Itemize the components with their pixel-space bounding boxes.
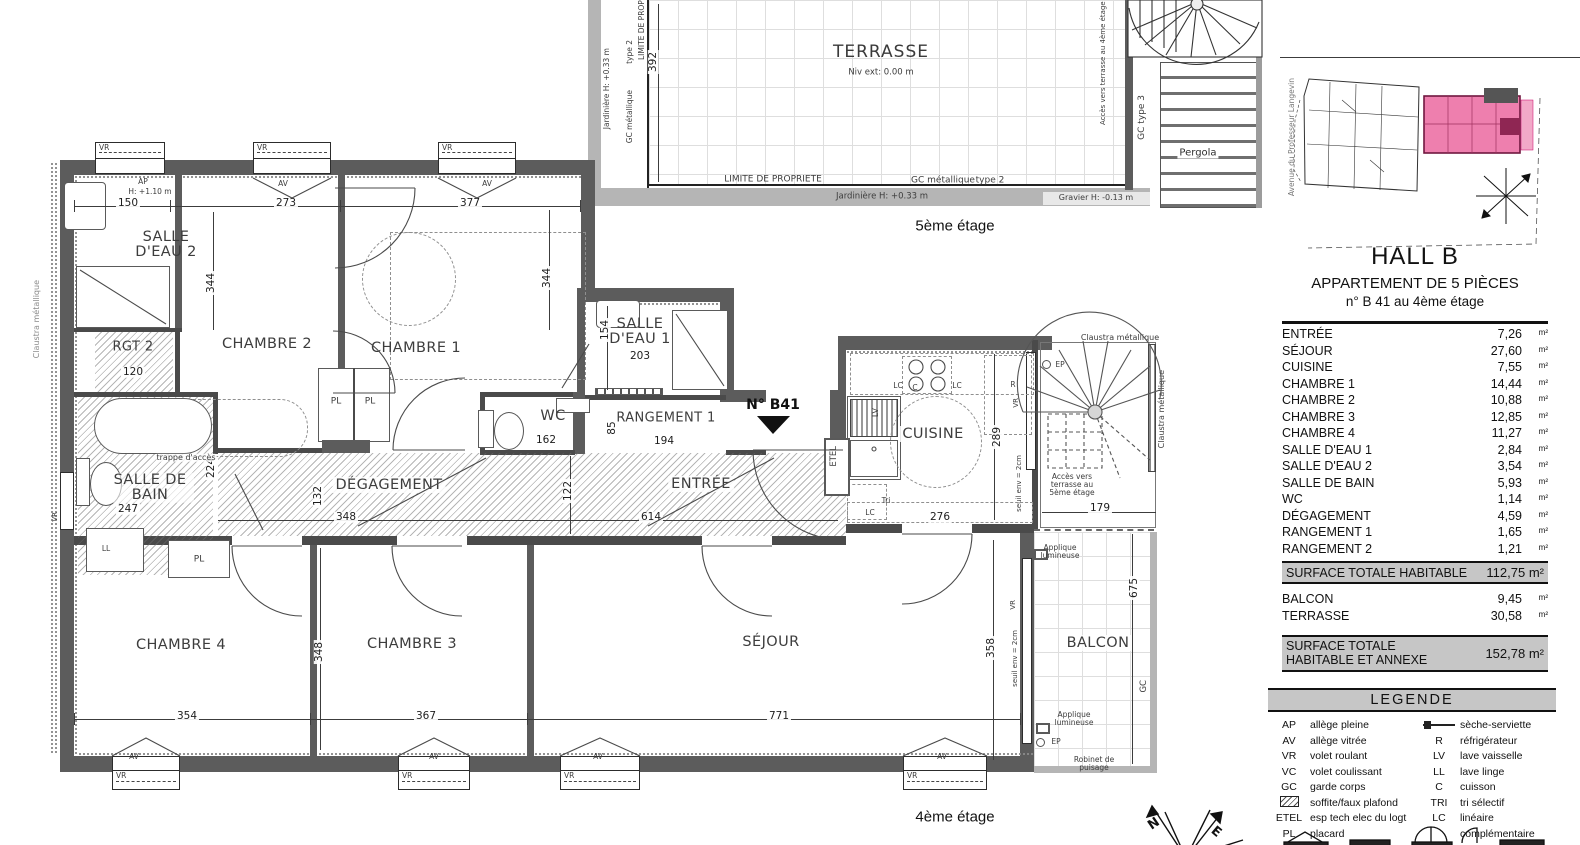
- room-name: BALCON: [1282, 592, 1470, 607]
- room-area: 7,26: [1470, 327, 1522, 342]
- door-arc-sejour: [702, 546, 772, 616]
- legend-label: volet coulissant: [1310, 765, 1418, 781]
- claustra-right-label: Claustra métallique: [1158, 370, 1166, 448]
- legend-item: soffite/faux plafond: [1268, 796, 1418, 812]
- room-name: CHAMBRE 4: [1282, 426, 1470, 441]
- vr-label: VR: [257, 144, 267, 152]
- terrace-gc-label: GC métallique: [911, 176, 975, 185]
- sitemap-building: [1294, 79, 1419, 191]
- architectural-drawing-sheet: { "labels": {"vr":"VR","av":"AV","ap":"A…: [0, 0, 1580, 845]
- terrace-left-type2-label: type 2: [626, 40, 634, 64]
- unit: m²: [1522, 475, 1548, 490]
- vr-label: VR: [116, 772, 126, 780]
- door-arc-ch1: [393, 378, 465, 450]
- wall-kitchen-top: [838, 336, 1052, 350]
- balcony-right-rail: [1150, 532, 1157, 772]
- table-row: CHAMBRE 210,88m²: [1282, 393, 1548, 410]
- unit: m²: [1522, 458, 1548, 473]
- table-row: SALLE DE BAIN5,93m²: [1282, 476, 1548, 493]
- vr-label: VR: [907, 772, 917, 780]
- room-name: RANGEMENT 1: [1282, 525, 1470, 540]
- table-row: BALCON9,45m²: [1282, 592, 1548, 609]
- room-area: 7,55: [1470, 360, 1522, 375]
- c-label: C: [912, 384, 917, 392]
- total-annexe-value: 152,78 m²: [1485, 646, 1544, 661]
- vr-label: VR: [442, 144, 452, 152]
- dim-150: 150: [116, 198, 140, 209]
- dim-348: 348: [334, 512, 358, 523]
- cuisine-table-dashed: [890, 396, 982, 488]
- dim-614: 614: [639, 512, 663, 523]
- gc-balcony-label: GC: [1140, 680, 1149, 693]
- balcony-top-dashed: [1034, 529, 1154, 531]
- legend-code: AP: [1268, 718, 1310, 734]
- ll-label: LL: [102, 545, 110, 553]
- wall-corridor-bottom-c: [467, 536, 702, 545]
- door-arc-ch4: [232, 546, 302, 616]
- unit: m²: [1522, 326, 1548, 341]
- wall-wc-top: [480, 392, 585, 397]
- room-area: 14,44: [1470, 377, 1522, 392]
- room-label-cuisine: CUISINE: [899, 426, 966, 442]
- legend-label: garde corps: [1310, 780, 1418, 796]
- room-label-rgt2: RGT 2: [113, 340, 154, 355]
- legend-label: allège vitrée: [1310, 734, 1418, 750]
- room-label-rgt1: RANGEMENT 1: [616, 411, 715, 426]
- table-row: CHAMBRE 312,85m²: [1282, 410, 1548, 427]
- room-name: SÉJOUR: [1282, 344, 1470, 359]
- unit-number-label: N° B41: [746, 397, 800, 413]
- spiral-stair-5th: [1128, 0, 1262, 64]
- kitchen-fridge: [984, 355, 1032, 435]
- table-row: ENTRÉE7,26m²: [1282, 327, 1548, 344]
- table-row: SÉJOUR27,60m²: [1282, 344, 1548, 361]
- legend-item: PLplacard: [1268, 827, 1418, 843]
- lc-label: LC: [893, 382, 902, 390]
- dim-line-675: [1132, 534, 1133, 764]
- room-name: RANGEMENT 2: [1282, 542, 1470, 557]
- legend-right-column: sèche-serviette Rréfrigérateur LVlave va…: [1418, 718, 1556, 842]
- total-habitable-band: SURFACE TOTALE HABITABLE 112,75 m²: [1282, 561, 1548, 584]
- pl-label: PL: [194, 555, 204, 564]
- legend-label: esp tech elec du logt: [1310, 811, 1418, 827]
- legend-code: PL: [1268, 827, 1310, 843]
- vr-label: VR: [402, 772, 412, 780]
- terrace-jardiniere-label: Jardinière H: +0.33 m: [836, 193, 928, 202]
- acces-terrasse-note: Accès vers terrasse au 5ème étage: [1040, 473, 1104, 497]
- total-habitable-label: SURFACE TOTALE HABITABLE: [1286, 566, 1486, 580]
- legend-item: GCgarde corps: [1268, 780, 1418, 796]
- legend-columns: APallège pleine AVallège vitrée VRvolet …: [1268, 718, 1556, 842]
- terrace-left-gc-label: GC métallique: [626, 90, 634, 143]
- room-area: 9,45: [1470, 592, 1522, 607]
- legend-code: C: [1418, 780, 1460, 796]
- room-label-ch1: CHAMBRE 1: [371, 340, 461, 356]
- wc-toilet-tank: [478, 410, 494, 448]
- dim-tick: [580, 200, 581, 212]
- window-sdb-left: [60, 472, 74, 530]
- av-label: AV: [429, 753, 439, 761]
- unit: m²: [1522, 409, 1548, 424]
- legend-item: TRItri sélectif: [1418, 796, 1556, 812]
- legend-item: sèche-serviette: [1418, 718, 1556, 734]
- legend: LEGENDE APallège pleine AVallège vitrée …: [1268, 688, 1556, 842]
- washing-machine: [86, 528, 144, 572]
- dim-276: 276: [928, 512, 952, 523]
- placard-divider: [353, 368, 355, 442]
- room-name: CUISINE: [1282, 360, 1470, 375]
- soffite-icon: [1268, 796, 1310, 812]
- dim-tick: [170, 200, 171, 212]
- av-label: AV: [937, 753, 947, 761]
- dim-273: 273: [274, 198, 298, 209]
- areas-table: ENTRÉE7,26m² SÉJOUR27,60m² CUISINE7,55m²…: [1282, 321, 1548, 558]
- terrace-limite-label: LIMITE DE PROPRIETE: [724, 175, 822, 184]
- applique-label: Applique lumineuse: [1048, 711, 1100, 727]
- dim-348: 348: [314, 640, 325, 664]
- dim-203: 203: [628, 351, 652, 362]
- room-area: 2,84: [1470, 443, 1522, 458]
- terrace-gc-type2: type 2: [976, 176, 1005, 185]
- ep-marker: [1036, 738, 1045, 747]
- wall-left: [60, 160, 74, 772]
- apartment-subtitle: APPARTEMENT DE 5 PIÈCES: [1282, 275, 1548, 292]
- unit: m²: [1522, 376, 1548, 391]
- legend-item: VCvolet coulissant: [1268, 765, 1418, 781]
- dim-tick: [340, 200, 341, 212]
- room-area: 11,27: [1470, 426, 1522, 441]
- sitemap-unit-highlight: [1308, 88, 1540, 248]
- unit: m²: [1522, 541, 1548, 556]
- room-name: SALLE DE BAIN: [1282, 476, 1470, 491]
- dim-132: 132: [313, 484, 324, 508]
- room-label-deg: DÉGAGEMENT: [332, 477, 445, 493]
- legend-label: tri sélectif: [1460, 796, 1556, 812]
- vr-label-vertical: VR: [52, 512, 59, 522]
- av-label: AV: [129, 753, 139, 761]
- legend-code: ETEL: [1268, 811, 1310, 827]
- window-sde2: [95, 158, 165, 174]
- dim-line-bottom: [74, 719, 1020, 720]
- insulation-bottom: [78, 752, 1035, 756]
- unit: m²: [1522, 343, 1548, 358]
- terrace-dim-line-392: [658, 4, 659, 182]
- claustra-left-label: Claustra métallique: [33, 280, 41, 358]
- dim-367: 367: [414, 711, 438, 722]
- room-name: SALLE D'EAU 1: [1282, 443, 1470, 458]
- legend-item: LVlave vaisselle: [1418, 749, 1556, 765]
- ep-marker: [1042, 360, 1051, 369]
- sitemap-separator-line: [1280, 57, 1580, 58]
- vr-label: VR: [564, 772, 574, 780]
- legend-code: LC: [1418, 811, 1460, 842]
- legend-code: VR: [1268, 749, 1310, 765]
- window-height-note: H: +1.10 m: [128, 188, 171, 196]
- wall-kitchen-left: [838, 350, 846, 396]
- terrace-level-note: Niv ext: 0.00 m: [848, 69, 913, 78]
- dim-771: 771: [767, 711, 791, 722]
- room-area: 10,88: [1470, 393, 1522, 408]
- lv-label: LV: [872, 408, 880, 417]
- insulation-top: [74, 175, 581, 179]
- terrace-room-label: TERRASSE: [833, 42, 929, 62]
- legend-label: linéaire complémentaire: [1460, 811, 1556, 842]
- room-label-sde2: SALLE D'EAU 2: [122, 230, 210, 260]
- legend-code: VC: [1268, 765, 1310, 781]
- r-label: R: [1010, 381, 1015, 389]
- wall-kitchen-sejour-a: [846, 524, 902, 533]
- door-arc-ch3: [392, 546, 462, 616]
- room-label-entree: ENTRÉE: [668, 476, 734, 492]
- table-row: RANGEMENT 11,65m²: [1282, 525, 1548, 542]
- unit-line: n° B 41 au 4ème étage: [1282, 294, 1548, 309]
- room-area: 1,14: [1470, 492, 1522, 507]
- gravier-note: Gravier H: -0.13 m: [1059, 194, 1133, 202]
- ap-label: AP: [138, 178, 148, 186]
- unit: m²: [1522, 508, 1548, 523]
- legend-item: Rréfrigérateur: [1418, 734, 1556, 750]
- legend-item: LLlave linge: [1418, 765, 1556, 781]
- etel-label: ETEL: [830, 446, 839, 467]
- room-area: 1,65: [1470, 525, 1522, 540]
- legend-code: LL: [1418, 765, 1460, 781]
- kitchen-hob: [902, 356, 952, 394]
- table-row: SALLE D'EAU 12,84m²: [1282, 443, 1548, 460]
- window-ch4: [112, 756, 180, 771]
- room-label-ch4: CHAMBRE 4: [136, 637, 226, 653]
- unit: m²: [1522, 491, 1548, 506]
- room-label-ch2: CHAMBRE 2: [222, 336, 312, 352]
- sdb-toilet-tank: [76, 458, 90, 506]
- room-label-ch3: CHAMBRE 3: [367, 636, 457, 652]
- room-area: 4,59: [1470, 509, 1522, 524]
- pergola-label: Pergola: [1177, 148, 1218, 159]
- legend-label: cuisson: [1460, 780, 1556, 796]
- room-area: 3,54: [1470, 459, 1522, 474]
- table-row: TERRASSE30,58m²: [1282, 609, 1548, 626]
- table-row: WC1,14m²: [1282, 492, 1548, 509]
- robinet-label: Robinet de puisage: [1064, 756, 1124, 772]
- total-annexe-band: SURFACE TOTALE HABITABLE ET ANNEXE 152,7…: [1282, 635, 1548, 672]
- room-area: 12,85: [1470, 410, 1522, 425]
- table-row: CHAMBRE 114,44m²: [1282, 377, 1548, 394]
- legend-code: R: [1418, 734, 1460, 750]
- door-arc-kitchen: [902, 534, 972, 604]
- room-name: SALLE D'EAU 2: [1282, 459, 1470, 474]
- unit: m²: [1522, 524, 1548, 539]
- pl-label: PL: [365, 397, 375, 406]
- legend-code: LV: [1418, 749, 1460, 765]
- legend-label: soffite/faux plafond: [1310, 796, 1418, 812]
- lc-label: LC: [865, 509, 874, 517]
- room-name: ENTRÉE: [1282, 327, 1470, 342]
- dim-120: 120: [121, 367, 145, 378]
- pl-label: PL: [331, 397, 341, 406]
- dim-289: 289: [992, 425, 1003, 449]
- dim-tick: [310, 713, 311, 725]
- unit: m²: [1522, 442, 1548, 457]
- legend-item: ETELesp tech elec du logt: [1268, 811, 1418, 827]
- av-pitch-top-ch1: [438, 178, 516, 198]
- table-row: SALLE D'EAU 23,54m²: [1282, 459, 1548, 476]
- dim-675: 675: [1129, 576, 1140, 600]
- legend-item: APallège pleine: [1268, 718, 1418, 734]
- dim-tick: [74, 713, 75, 725]
- ch1-circle-dashed: [362, 232, 456, 326]
- terrace-floor-tiles: [649, 0, 1125, 186]
- legend-item: Ccuisson: [1418, 780, 1556, 796]
- legend-title: LEGENDE: [1268, 688, 1556, 712]
- room-area: 1,21: [1470, 542, 1522, 557]
- room-name: CHAMBRE 3: [1282, 410, 1470, 425]
- room-name: CHAMBRE 1: [1282, 377, 1470, 392]
- wall-corridor-bottom-d: [772, 536, 846, 545]
- dim-162: 162: [534, 435, 558, 446]
- pergola-right-edge: [1256, 0, 1262, 208]
- applique-label: Applique lumineuse: [1034, 544, 1086, 560]
- room-name: TERRASSE: [1282, 609, 1470, 624]
- wall-ch3-sejour: [527, 545, 534, 756]
- claustra-right-strip: [1148, 344, 1156, 472]
- info-panel: HALL B APPARTEMENT DE 5 PIÈCES n° B 41 a…: [1282, 243, 1548, 672]
- legend-item: VRvolet roulant: [1268, 749, 1418, 765]
- dim-line-top: [74, 206, 580, 207]
- room-name: DÉGAGEMENT: [1282, 509, 1470, 524]
- ep-label: EP: [1051, 738, 1060, 746]
- legend-left-column: APallège pleine AVallège vitrée VRvolet …: [1268, 718, 1418, 842]
- stairs-zone-frame: [1040, 342, 1156, 528]
- dim-344: 344: [542, 266, 553, 290]
- dim-line-corridor: [218, 520, 838, 521]
- legend-label: lave vaisselle: [1460, 749, 1556, 765]
- lc-label: LC: [952, 382, 961, 390]
- room-label-sde1: SALLE D'EAU 1: [596, 317, 684, 347]
- bay-window-sejour: [1022, 558, 1032, 744]
- wall-bottom: [60, 756, 1035, 772]
- dim-194: 194: [652, 436, 676, 447]
- placard-dark-block: [322, 440, 370, 453]
- room-label-sejour: SÉJOUR: [742, 634, 799, 650]
- room-area: 5,93: [1470, 476, 1522, 491]
- wall-kitchen-sejour-b: [972, 524, 1034, 533]
- av-pitch-top-ch2: [253, 178, 331, 198]
- legend-label: sèche-serviette: [1460, 718, 1556, 734]
- dim-tick: [1020, 713, 1021, 725]
- compass-n-label: N: [1145, 815, 1163, 834]
- dim-247: 247: [116, 504, 140, 515]
- table-row: CUISINE7,55m²: [1282, 360, 1548, 377]
- legend-item: LClinéaire complémentaire: [1418, 811, 1556, 842]
- dim-122: 122: [563, 479, 574, 503]
- legend-code: GC: [1268, 780, 1310, 796]
- window-ch1: [438, 158, 516, 174]
- unit-entry-marker: [757, 416, 790, 434]
- total-habitable-value: 112,75 m²: [1486, 565, 1544, 580]
- room-name: WC: [1282, 492, 1470, 507]
- unit: m²: [1522, 425, 1548, 440]
- tri-label: Tri: [882, 497, 891, 505]
- table-row: DÉGAGEMENT4,59m²: [1282, 509, 1548, 526]
- floor5-caption: 5ème étage: [915, 218, 994, 235]
- room-label-wc: WC: [540, 408, 565, 424]
- seuil-note: seuil env = 2cm: [1012, 630, 1019, 687]
- legend-item: AVallège vitrée: [1268, 734, 1418, 750]
- room-label-balcon: BALCON: [1065, 635, 1132, 651]
- legend-label: volet roulant: [1310, 749, 1418, 765]
- room-label-sdb: SALLE DE BAIN: [106, 473, 194, 503]
- room-name: CHAMBRE 2: [1282, 393, 1470, 408]
- seche-serviette-icon: [1418, 718, 1460, 734]
- bathtub: [94, 398, 212, 454]
- sitemap-street-label: Avenue du Professeur Langevin: [1288, 78, 1296, 196]
- dim-179: 179: [1088, 503, 1112, 514]
- legend-label: placard: [1310, 827, 1418, 843]
- legend-code: TRI: [1418, 796, 1460, 812]
- terrace-left-limite-label: LIMITE DE PROPRIETE: [638, 0, 646, 60]
- table-row: RANGEMENT 21,21m²: [1282, 542, 1548, 559]
- exterior-cladding-left: [50, 162, 57, 754]
- claustra-top-label: Claustra métallique: [1081, 334, 1159, 342]
- room-area: 30,58: [1470, 609, 1522, 624]
- legend-label: réfrigérateur: [1460, 734, 1556, 750]
- av-label: AV: [482, 180, 492, 188]
- annex-rows: BALCON9,45m² TERRASSE30,58m²: [1282, 592, 1548, 625]
- window-ch2: [253, 158, 331, 174]
- unit: m²: [1522, 392, 1548, 407]
- unit: m²: [1522, 608, 1548, 623]
- dim-tick: [527, 713, 528, 725]
- legend-label: lave linge: [1460, 765, 1556, 781]
- trappe-label: trappe d'accès: [156, 454, 215, 462]
- ep-label: EP: [1055, 361, 1064, 369]
- unit: m²: [1522, 359, 1548, 374]
- floor4-caption: 4ème étage: [915, 809, 994, 826]
- total-annexe-label: SURFACE TOTALE HABITABLE ET ANNEXE: [1286, 639, 1436, 668]
- dim-377: 377: [458, 198, 482, 209]
- wall-corridor-bottom-b: [302, 536, 397, 545]
- table-row: CHAMBRE 411,27m²: [1282, 426, 1548, 443]
- wc-toilet-bowl: [494, 412, 524, 450]
- terrace-left-jardiniere-label: Jardinière H: +0.33 m: [603, 48, 611, 129]
- sde2-shower: [76, 266, 170, 328]
- pergola-gc-type3: GC type 3: [1138, 95, 1147, 140]
- room-area: 27,60: [1470, 344, 1522, 359]
- towel-radiator: [595, 388, 663, 395]
- compass-e-label: E: [1208, 823, 1224, 840]
- hall-title: HALL B: [1282, 243, 1548, 271]
- legend-label: allège pleine: [1310, 718, 1418, 734]
- av-label: AV: [278, 180, 288, 188]
- pergola-slats: [1160, 62, 1260, 208]
- terrace-dim-392: 392: [648, 50, 659, 74]
- parois-note: Parois en bois: [1248, 5, 1256, 57]
- vr-label-vertical: VR: [1010, 600, 1017, 610]
- unit: m²: [1522, 591, 1548, 606]
- compass-sitemap: [1476, 168, 1536, 224]
- vr-label: VR: [99, 144, 109, 152]
- dim-tick: [74, 200, 75, 212]
- dim-358: 358: [986, 636, 997, 660]
- wall-rgt1-top: [585, 395, 726, 400]
- dim-344: 344: [206, 271, 217, 295]
- dim-354: 354: [175, 711, 199, 722]
- wall-rgt2-right: [175, 330, 180, 392]
- legend-code: AV: [1268, 734, 1310, 750]
- terrace-acces-note: Accès vers terrasse au 4ème étage: [1100, 5, 1130, 125]
- av-label: AV: [593, 753, 603, 761]
